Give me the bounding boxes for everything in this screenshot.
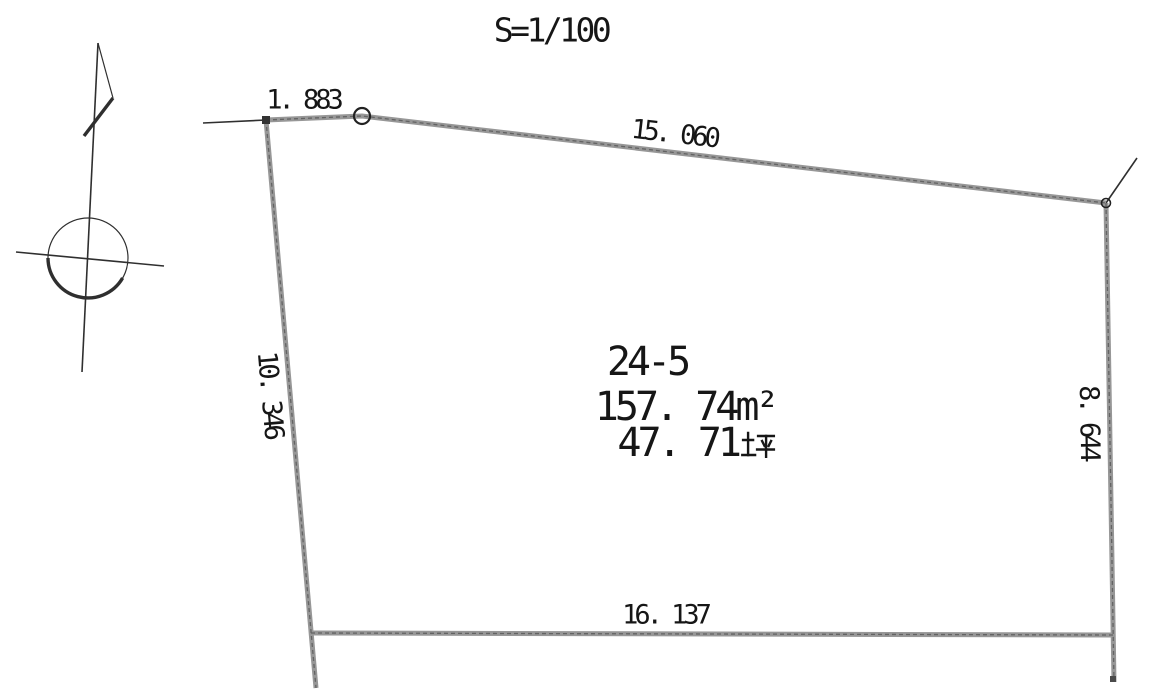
vertex-mark-southeast — [1110, 676, 1116, 682]
tsubo-unit-glyph — [741, 428, 775, 458]
north-arrow-shaft — [82, 43, 98, 372]
survey-drawing-page: S=1/100 1. 883 15. 060 10. 346 8. 644 16… — [0, 0, 1158, 700]
reference-line-northeast — [1106, 158, 1137, 203]
scale-label: S=1/100 — [494, 14, 609, 47]
dimension-right: 8. 644 — [1075, 385, 1103, 459]
dimension-bottom: 16. 137 — [622, 602, 708, 629]
boundary-east-texture — [1106, 203, 1114, 682]
north-arrow-head-edge — [98, 43, 113, 98]
area-tsubo-value: 47. 71 — [617, 420, 738, 466]
north-arrow-cross-line — [16, 252, 164, 266]
vertex-square-northwest — [262, 116, 270, 124]
dimension-top-short: 1. 883 — [266, 87, 340, 114]
dimension-left: 10. 346 — [253, 350, 287, 438]
north-arrow-head-stroke — [84, 98, 113, 136]
reference-line-west — [203, 120, 266, 123]
area-tsubo: 47. 71 — [537, 383, 775, 503]
north-arrow-icon — [16, 43, 164, 372]
